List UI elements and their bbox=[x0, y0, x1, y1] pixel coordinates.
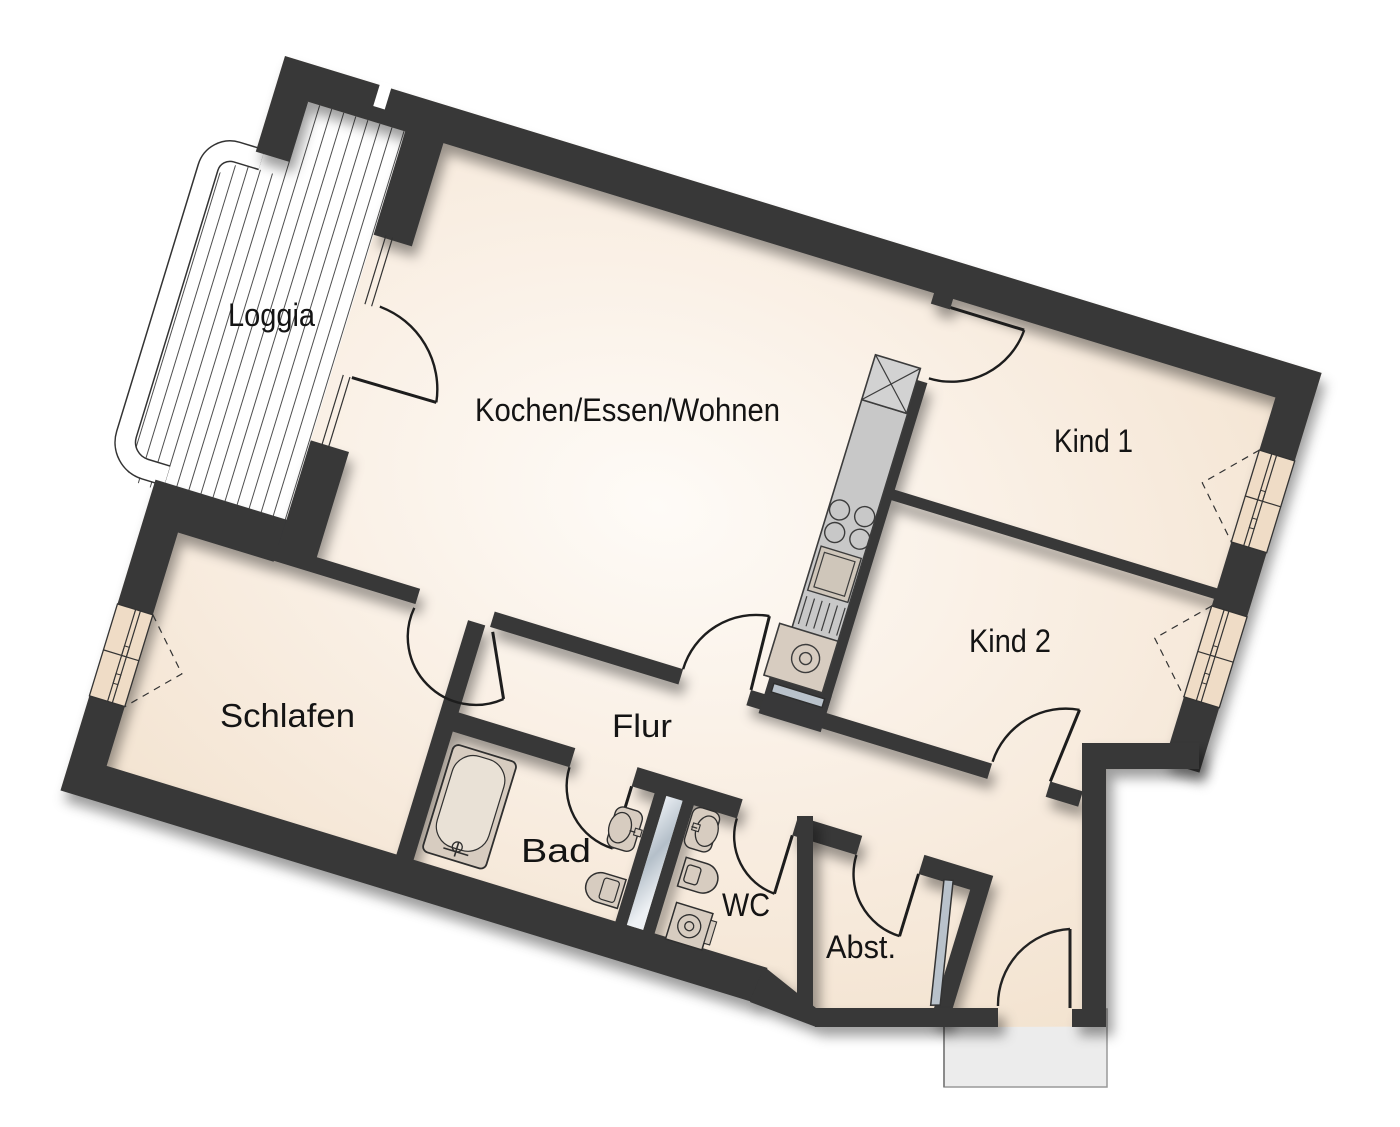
svg-text:Abst.: Abst. bbox=[826, 929, 896, 965]
svg-text:Schlafen: Schlafen bbox=[220, 697, 355, 734]
svg-text:Kind 2: Kind 2 bbox=[969, 623, 1051, 659]
svg-text:Flur: Flur bbox=[612, 708, 672, 744]
svg-text:Loggia: Loggia bbox=[228, 297, 315, 333]
svg-text:Kind 1: Kind 1 bbox=[1054, 423, 1133, 459]
svg-text:Bad: Bad bbox=[521, 832, 591, 869]
svg-text:Kochen/Essen/Wohnen: Kochen/Essen/Wohnen bbox=[475, 392, 780, 428]
svg-text:WC: WC bbox=[722, 887, 770, 923]
